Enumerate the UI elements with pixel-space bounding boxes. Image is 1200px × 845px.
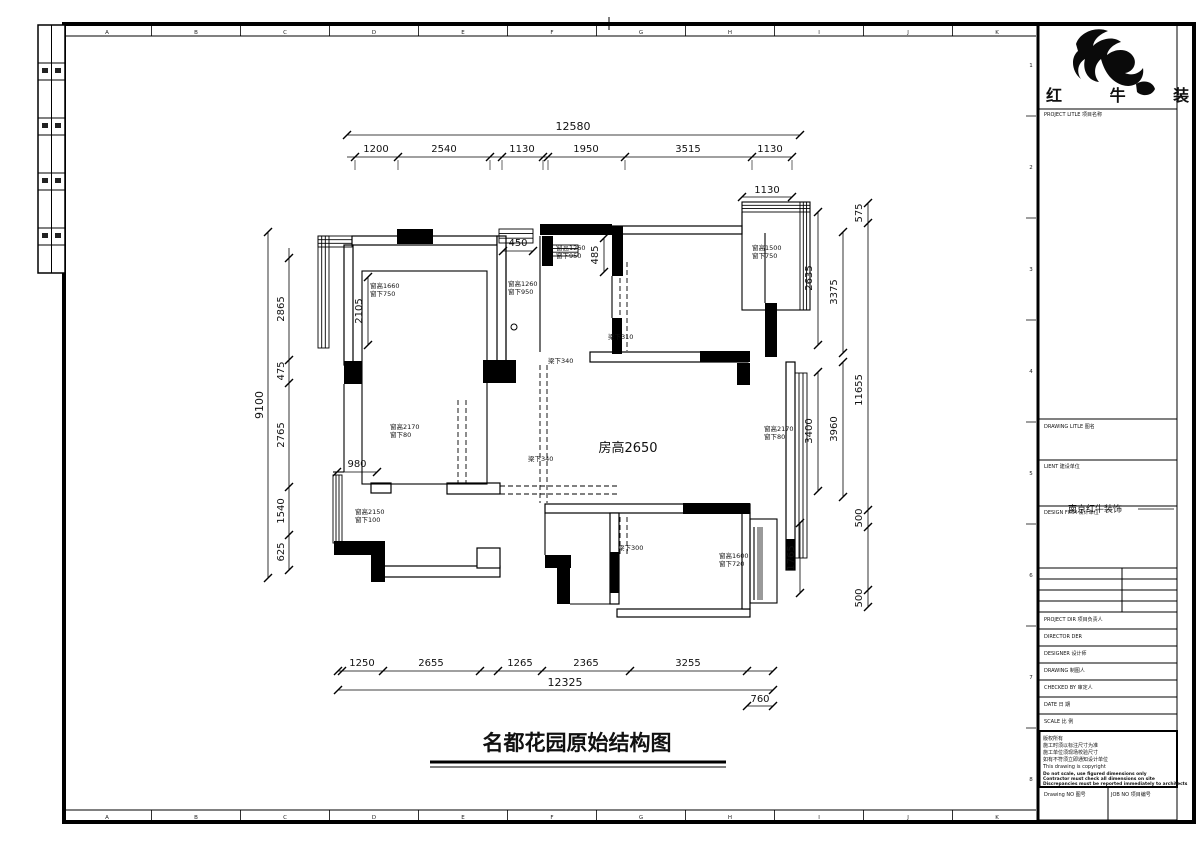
dim: 1200 <box>363 144 388 155</box>
window-label: 窗高1660 <box>370 281 400 290</box>
window-label: 窗高2150 <box>355 507 385 516</box>
dim: 3515 <box>675 144 700 155</box>
project-title-label: PROJECT LITLE 项目名称 <box>1044 111 1102 118</box>
beam-label: 梁下310 <box>608 332 633 341</box>
grid-number: 2 <box>1029 165 1033 171</box>
sheet-frame <box>64 17 1194 822</box>
note-line: 施工单位须现场校验尺寸 <box>1043 749 1098 756</box>
grid-letter: C <box>283 815 287 821</box>
window-label: 窗下80 <box>764 432 785 441</box>
dim: 625 <box>276 542 287 561</box>
drawing-title: 名都花园原始结构图 <box>483 731 672 755</box>
dimension-ticks <box>264 131 872 710</box>
grid-letter: H <box>728 815 732 821</box>
grid-letter: E <box>461 815 465 821</box>
dim: 2365 <box>573 658 598 669</box>
dim: 2865 <box>276 296 287 321</box>
window-label: 窗高1260 <box>508 279 538 288</box>
room-height-label: 房高2650 <box>598 440 657 456</box>
grid-letter: B <box>194 30 198 36</box>
grid-letter: J <box>906 815 909 821</box>
brand-name: 红 牛 装 饰 <box>1046 86 1200 105</box>
dim: 3960 <box>829 416 840 441</box>
grid-letter: I <box>818 30 820 36</box>
dim-485: 485 <box>590 245 601 264</box>
dim: 3375 <box>829 279 840 304</box>
dim: 2540 <box>431 144 456 155</box>
grid-letter: E <box>461 30 465 36</box>
beam-label: 梁下340 <box>548 356 573 365</box>
plan-annotations: 房高2650 窗高1660 窗下750 窗高1260 窗下950 窗高1260 … <box>355 243 794 568</box>
grid-number: 5 <box>1029 471 1033 477</box>
dim: 1540 <box>276 498 287 523</box>
window-label: 窗高1600 <box>719 551 749 560</box>
dim: 1250 <box>349 658 374 669</box>
grid-letter: K <box>995 815 999 821</box>
dim: 3400 <box>804 418 815 443</box>
job-no-label: JOB NO 项目编号 <box>1110 791 1151 798</box>
grid-letter: G <box>639 815 643 821</box>
window-label: 窗下750 <box>752 251 777 260</box>
grid-letter: F <box>550 815 553 821</box>
note-line: 版权所有 <box>1043 735 1063 742</box>
shaft-symbol <box>511 324 517 330</box>
project-dir-label: PROJECT DIR 项目负责人 <box>1044 616 1103 623</box>
grid-number: 6 <box>1029 573 1033 579</box>
grid-number: 3 <box>1029 267 1033 273</box>
date-label: DATE 日 期 <box>1044 702 1070 708</box>
grid-letters-top: A B C D E F G H I J K <box>105 30 999 36</box>
window-label: 窗高1500 <box>752 243 782 252</box>
window-label: 窗下750 <box>370 289 395 298</box>
grid-letter: G <box>639 30 643 36</box>
dim: 1130 <box>509 144 534 155</box>
window-label: 窗下950 <box>556 251 581 260</box>
grid-letter: J <box>906 30 909 36</box>
beam-label: 梁下340 <box>528 454 553 463</box>
dim: 575 <box>854 203 865 222</box>
client-label: LIENT 建设单位 <box>1044 463 1080 470</box>
note-line: 施工时须以标注尺寸为准 <box>1043 742 1098 749</box>
window-label: 窗高2170 <box>390 422 420 431</box>
dimensions <box>268 135 868 706</box>
checked-by-label: CHECKED BY 审定人 <box>1044 684 1093 691</box>
dim-niche: 980 <box>347 459 366 470</box>
grid-letter: D <box>372 30 376 36</box>
dim: 500 <box>854 508 865 527</box>
dim: 500 <box>854 588 865 607</box>
drawing-footer: 名都花园原始结构图 <box>430 731 726 767</box>
dim: 3255 <box>675 658 700 669</box>
floor-plan: 12580 1200 2540 1130 1950 3515 1130 1130… <box>253 120 872 767</box>
dim: 11655 <box>854 374 865 406</box>
dim-top-total: 12580 <box>556 120 591 133</box>
drawing-title-label: DRAWING LITLE 图名 <box>1044 423 1095 430</box>
drawing-no-label: Drawing NO 图号 <box>1044 792 1086 798</box>
dim-balcony-top: 1130 <box>754 185 779 196</box>
grid-letter: A <box>105 815 109 821</box>
window-label: 窗下720 <box>719 559 744 568</box>
grid-letter: K <box>995 30 999 36</box>
copyright-notes: 版权所有 施工时须以标注尺寸为准 施工单位须现场校验尺寸 如有不符须立即通知设计… <box>1042 735 1188 787</box>
design-firm-label: DESIGN FIRM 设计单位 <box>1044 509 1099 516</box>
note-line: This drawing is copyright <box>1042 764 1106 770</box>
windows-glazing <box>318 202 810 600</box>
scale-label: SCALE 比 例 <box>1044 718 1073 725</box>
walls-lines <box>333 202 810 604</box>
dim: 1130 <box>757 144 782 155</box>
dim: 475 <box>276 361 287 380</box>
drawing-by-label: DRAWING 制图人 <box>1044 667 1085 674</box>
dim: 2765 <box>276 422 287 447</box>
grid-number: 8 <box>1029 777 1033 783</box>
grid-number: 4 <box>1029 369 1033 375</box>
dim: 1765 <box>786 545 797 570</box>
dim-a-height: 2105 <box>354 298 365 323</box>
window-label: 窗下80 <box>390 430 411 439</box>
dim-bottom-total: 12325 <box>548 676 583 689</box>
grid-number: 7 <box>1029 675 1033 681</box>
window-label: 窗高1260 <box>556 243 586 252</box>
grid-letter: F <box>550 30 553 36</box>
note-line-bold: Discrepancies must be reported immediate… <box>1043 781 1188 787</box>
grid-letter: A <box>105 30 109 36</box>
window-label: 窗下950 <box>508 287 533 296</box>
dim: 2655 <box>418 658 443 669</box>
grid-letter: D <box>372 815 376 821</box>
designer-label: DESIGNER 设计师 <box>1044 650 1087 657</box>
grid-letter: C <box>283 30 287 36</box>
dim-left-total: 9100 <box>253 391 266 419</box>
grid-letter: B <box>194 815 198 821</box>
grid-number: 1 <box>1029 63 1033 69</box>
dim: 1950 <box>573 144 598 155</box>
dim-450: 450 <box>508 238 527 249</box>
walls-solid <box>334 224 795 604</box>
grid-numbers-right: 1 2 3 4 5 6 7 8 <box>1029 63 1033 783</box>
window-label: 窗高2170 <box>764 424 794 433</box>
grid-letter: H <box>728 30 732 36</box>
drawing-sheet: A B C D E F G H I J K A B C D E F G H I … <box>0 0 1200 845</box>
dim: 2635 <box>804 265 815 290</box>
note-line: 如有不符须立即通知设计单位 <box>1043 756 1108 763</box>
dim-balcony-bottom: 760 <box>750 694 769 705</box>
title-block: 红 牛 装 饰 PROJECT LITLE 项目名称 DRAWING LITLE… <box>1038 29 1200 820</box>
dim: 1265 <box>507 658 532 669</box>
signoff-strip <box>38 25 65 273</box>
sheet-canvas: A B C D E F G H I J K A B C D E F G H I … <box>0 0 1200 845</box>
beam-label: 梁下300 <box>618 543 643 552</box>
window-label: 窗下100 <box>355 515 380 524</box>
director-label: DIRECTOR DER <box>1044 634 1083 640</box>
dimension-texts: 12580 1200 2540 1130 1950 3515 1130 1130… <box>253 120 865 705</box>
